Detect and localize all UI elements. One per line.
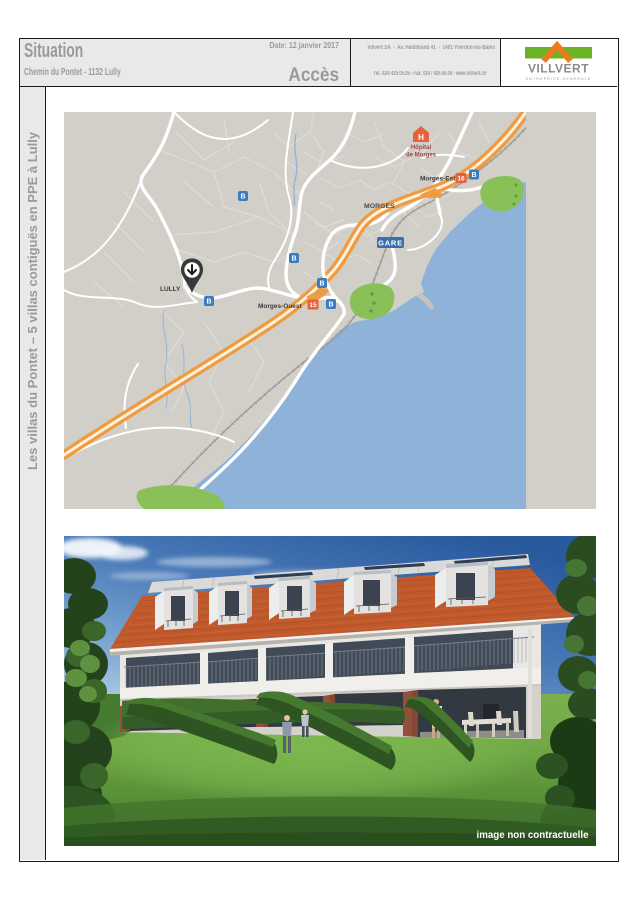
svg-text:B: B (240, 194, 245, 201)
svg-text:Morges-Est: Morges-Est (420, 176, 456, 183)
svg-text:ENTREPRISE GENERALE: ENTREPRISE GENERALE (526, 77, 592, 81)
svg-text:B: B (471, 172, 476, 179)
svg-text:16: 16 (457, 176, 465, 183)
svg-text:Hôpital: Hôpital (411, 145, 432, 151)
svg-text:15: 15 (309, 302, 317, 309)
svg-text:GARE: GARE (378, 239, 403, 248)
svg-text:LULLY: LULLY (160, 286, 181, 293)
svg-text:VILLVERT: VILLVERT (528, 62, 589, 76)
svg-text:H: H (418, 133, 424, 142)
svg-text:Morges-Ouest: Morges-Ouest (258, 303, 303, 310)
svg-text:B: B (206, 299, 211, 306)
svg-text:B: B (291, 256, 296, 263)
svg-text:de Morges: de Morges (406, 153, 437, 159)
svg-text:B: B (328, 302, 333, 309)
svg-text:image non contractuelle: image non contractuelle (477, 830, 589, 841)
svg-text:B: B (319, 281, 324, 288)
svg-text:MORGES: MORGES (364, 203, 395, 210)
